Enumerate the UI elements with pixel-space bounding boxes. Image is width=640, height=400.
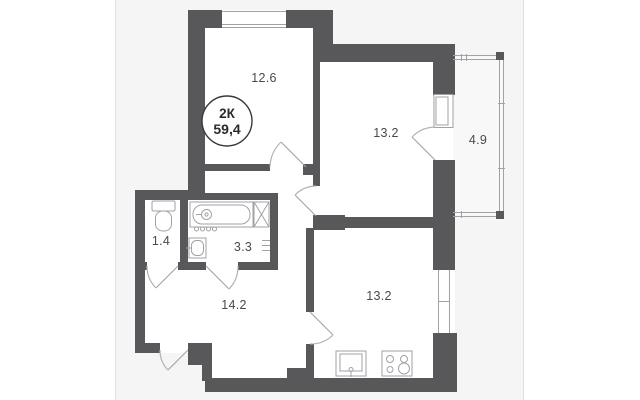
stove-icon	[382, 351, 412, 376]
balcony-door-gap	[433, 127, 453, 160]
living-door-gap	[313, 186, 320, 216]
bedroom-area-label: 12.6	[251, 71, 277, 85]
page-background: 12.6 13.2 4.9 1.4 3.3 14.2 13.2 2К 59,4	[0, 0, 640, 400]
wc-area-label: 1.4	[152, 234, 170, 248]
kitchen-door-gap	[306, 312, 314, 344]
entrance-door-gap	[160, 343, 188, 353]
washing-machine-icon	[254, 202, 269, 227]
room-kitchen	[314, 228, 435, 378]
balcony-corner-post	[496, 52, 504, 60]
toilet-icon	[152, 201, 175, 231]
bedroom-window	[222, 10, 286, 28]
floor-plan: 12.6 13.2 4.9 1.4 3.3 14.2 13.2 2К 59,4	[0, 0, 640, 400]
area-badge: 2К 59,4	[202, 96, 252, 146]
kitchen-area-label: 13.2	[366, 289, 392, 303]
badge-room-count: 2К	[219, 106, 236, 121]
badge-total-area: 59,4	[213, 121, 240, 137]
hallway-area-label: 14.2	[221, 298, 247, 312]
living-balcony-window	[434, 95, 453, 128]
kitchen-window	[433, 270, 455, 333]
living-area-label: 13.2	[373, 126, 399, 140]
bathroom-area-label: 3.3	[234, 240, 252, 254]
balcony-corner-post	[496, 211, 504, 219]
balcony-area-label: 4.9	[469, 133, 487, 147]
bathtub-icon	[190, 202, 253, 231]
kitchen-sink-icon	[336, 351, 366, 377]
washbasin-icon	[186, 238, 206, 258]
